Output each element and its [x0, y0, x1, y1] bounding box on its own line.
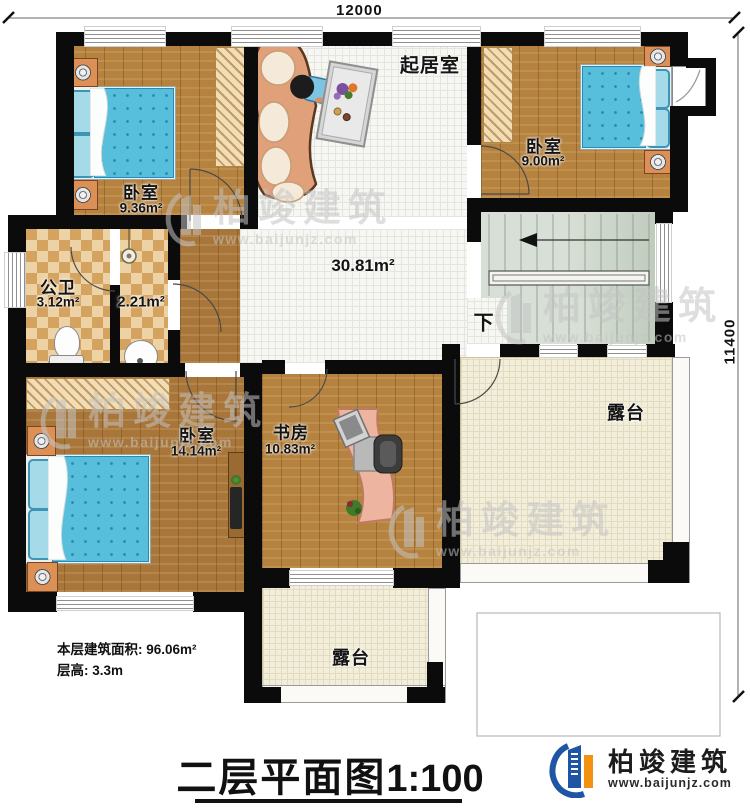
wall [8, 229, 26, 253]
wall [262, 360, 285, 374]
wall [8, 592, 57, 612]
room-label-living: 起居室 [400, 51, 460, 78]
drawing-title: 二层平面图1:100 [140, 745, 520, 803]
company-name: 柏竣建筑 [608, 748, 732, 777]
wall [322, 32, 393, 46]
wall [393, 568, 460, 588]
terrace-right-parapet-south [460, 563, 674, 583]
wall [670, 106, 688, 212]
dimension-right: 11400 [722, 312, 739, 372]
window [540, 346, 577, 357]
room-label-terrace-right: 露台 [607, 399, 645, 425]
wall [646, 344, 675, 357]
wall [8, 363, 185, 377]
bay-wall [686, 106, 716, 116]
corridor-floor [180, 229, 240, 363]
wall [244, 582, 262, 688]
room-area-bedroom-bl: 14.14m² [171, 444, 221, 459]
wall [8, 307, 26, 592]
wall [655, 212, 673, 224]
room-label-terrace-bottom: 露台 [332, 644, 370, 670]
company-website: www.baijunjz.com [608, 776, 732, 790]
room-area-living: 30.81m² [331, 256, 394, 276]
bed-sheet [630, 66, 656, 146]
floor-area-note: 本层建筑面积: 96.06m² [57, 640, 197, 661]
wall [442, 344, 460, 568]
dimension-top: 12000 [336, 2, 383, 19]
wall [467, 46, 481, 145]
eave-outline [477, 613, 720, 736]
wardrobe [215, 47, 246, 167]
wardrobe [483, 47, 513, 143]
room-area-bedroom-tr: 9.00m² [522, 154, 565, 169]
nightstand [644, 46, 672, 67]
floor-height-note: 层高: 3.3m [57, 661, 197, 682]
wall [56, 32, 74, 215]
plant [231, 475, 241, 485]
bed-sheet [90, 88, 120, 176]
wardrobe [26, 378, 170, 410]
window [5, 253, 25, 307]
room-label-study: 书房 [273, 419, 309, 444]
stair-floor-upper [481, 212, 655, 298]
window [232, 27, 322, 46]
wall [655, 302, 673, 344]
room-area-bathroom: 3.12m² [37, 295, 80, 310]
nightstand [27, 426, 56, 456]
floor-stats: 本层建筑面积: 96.06m² 层高: 3.3m [57, 640, 197, 682]
terrace-door [290, 571, 393, 585]
stairs-down-label: 下 [474, 307, 495, 336]
window [393, 27, 480, 46]
wall [325, 360, 460, 374]
bed-sheet [48, 456, 80, 560]
wall [244, 32, 258, 229]
window [85, 27, 165, 46]
terrace-bottom-floor [262, 585, 430, 687]
office-chair [374, 435, 402, 473]
room-area-washroom: 2.21m² [117, 294, 165, 311]
stair-floor-lower [507, 298, 655, 344]
wall [500, 344, 540, 357]
wall [467, 212, 481, 242]
window [657, 224, 671, 302]
room-area-bedroom-tl: 9.36m² [120, 201, 163, 216]
wall [467, 198, 688, 212]
company-logo-icon [548, 740, 600, 798]
wall [165, 32, 232, 46]
title-underline [195, 799, 462, 803]
shower-head [118, 229, 140, 265]
plant [346, 500, 362, 516]
floor-plan: 卧室 9.36m² 起居室 30.81m² 卧室 9.00m² 公卫 3.12m… [0, 0, 750, 810]
parapet-corner [244, 687, 281, 703]
nightstand [644, 150, 672, 174]
parapet-corner [648, 560, 689, 583]
room-area-study: 10.83m² [265, 442, 315, 457]
nightstand [27, 562, 58, 592]
wall [168, 215, 180, 280]
title-scale: 1:100 [386, 758, 483, 800]
living-floor-mid [240, 229, 467, 363]
window [545, 27, 640, 46]
window [57, 597, 193, 610]
bay-window-alcove [672, 66, 706, 108]
terrace-right-floor [460, 357, 674, 565]
title-text: 二层平面图 [176, 756, 386, 800]
wall [480, 32, 545, 46]
tv [230, 487, 242, 529]
wall [577, 344, 608, 357]
parapet-corner [427, 662, 443, 703]
desk-group [330, 405, 446, 527]
company-logo: 柏竣建筑 www.baijunjz.com [548, 740, 732, 798]
window [608, 346, 646, 357]
wall [244, 363, 262, 592]
